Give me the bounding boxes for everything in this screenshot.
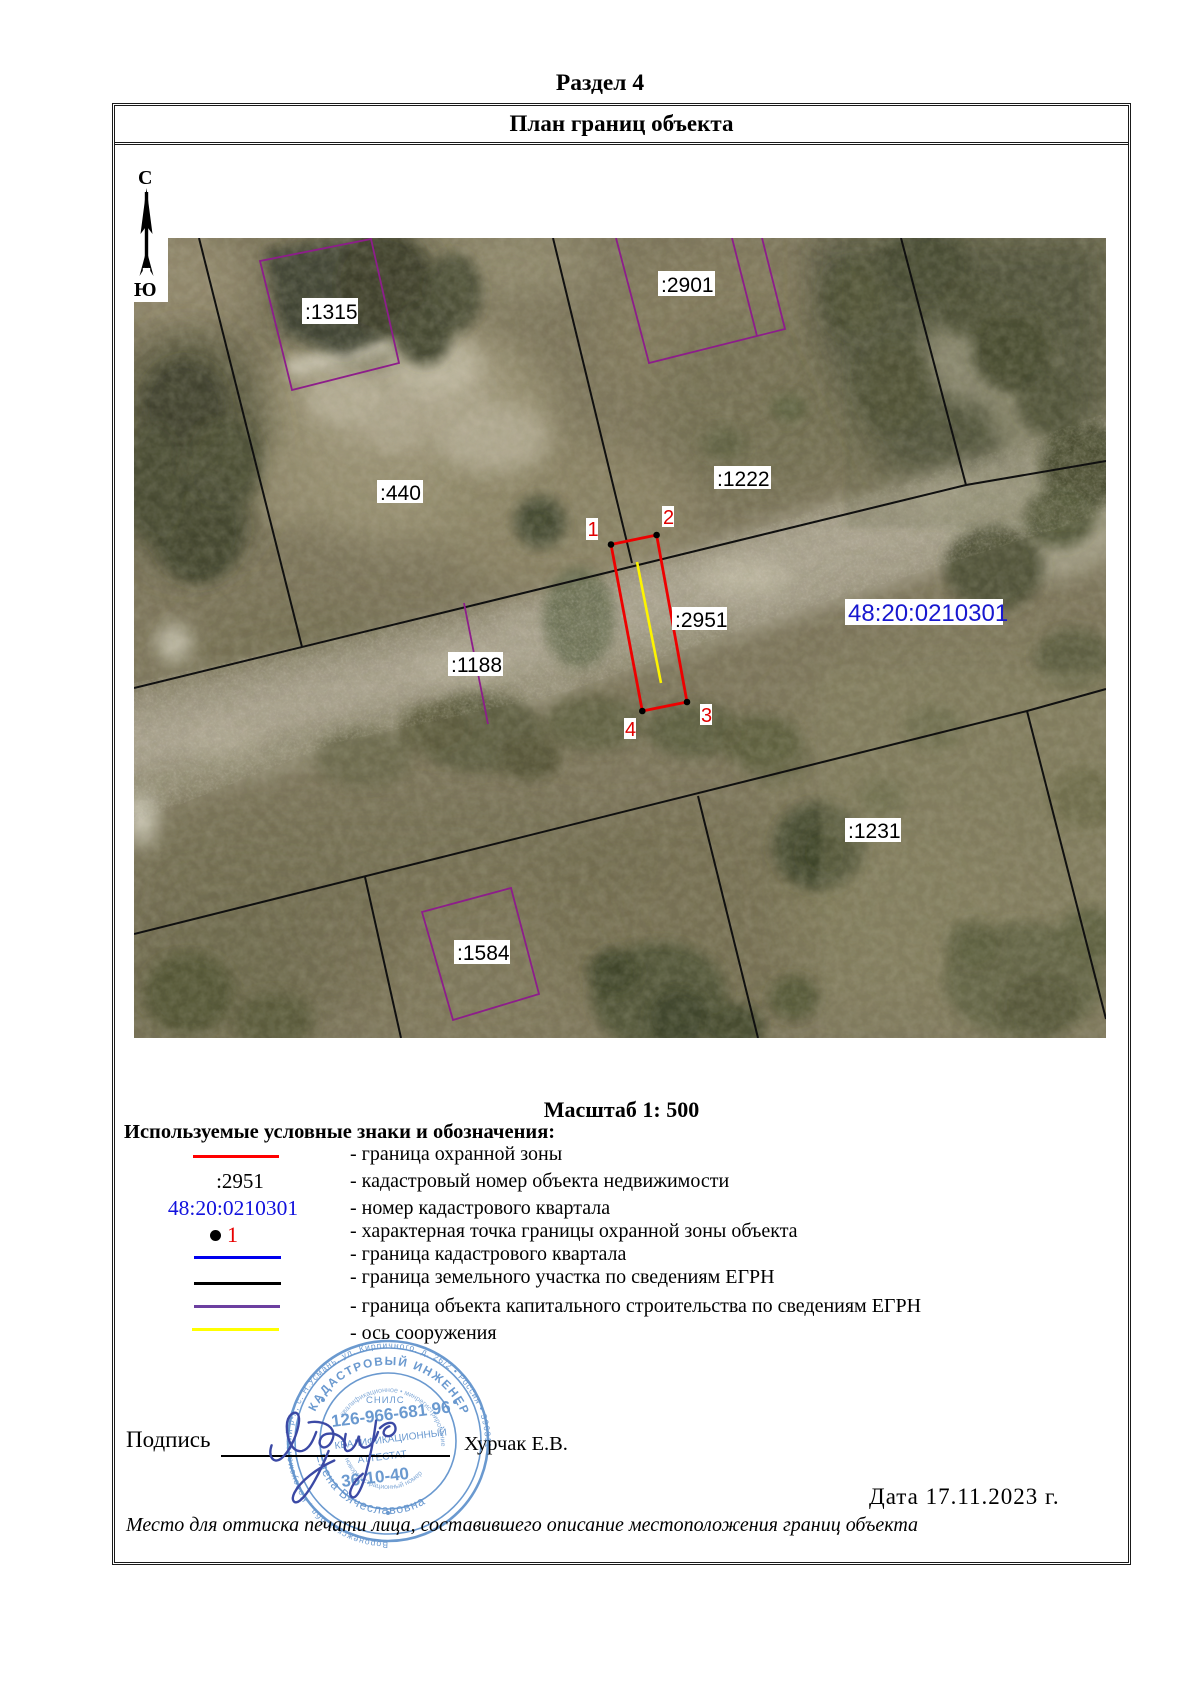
svg-text::440: :440	[380, 482, 421, 505]
svg-text:3: 3	[701, 705, 712, 727]
svg-text::1188: :1188	[451, 654, 502, 677]
svg-text:48:20:0210301: 48:20:0210301	[848, 600, 1008, 627]
svg-text:С: С	[138, 167, 152, 189]
svg-text::1222: :1222	[717, 468, 770, 491]
svg-text:1: 1	[588, 519, 599, 541]
svg-text::1315: :1315	[305, 301, 358, 324]
svg-text::2901: :2901	[661, 274, 714, 297]
svg-text::1584: :1584	[457, 942, 510, 965]
svg-text::1231: :1231	[848, 820, 901, 843]
svg-text:Ю: Ю	[134, 279, 157, 301]
svg-text:4: 4	[625, 719, 636, 741]
svg-text:2: 2	[663, 507, 674, 529]
svg-text::2951: :2951	[675, 609, 728, 632]
